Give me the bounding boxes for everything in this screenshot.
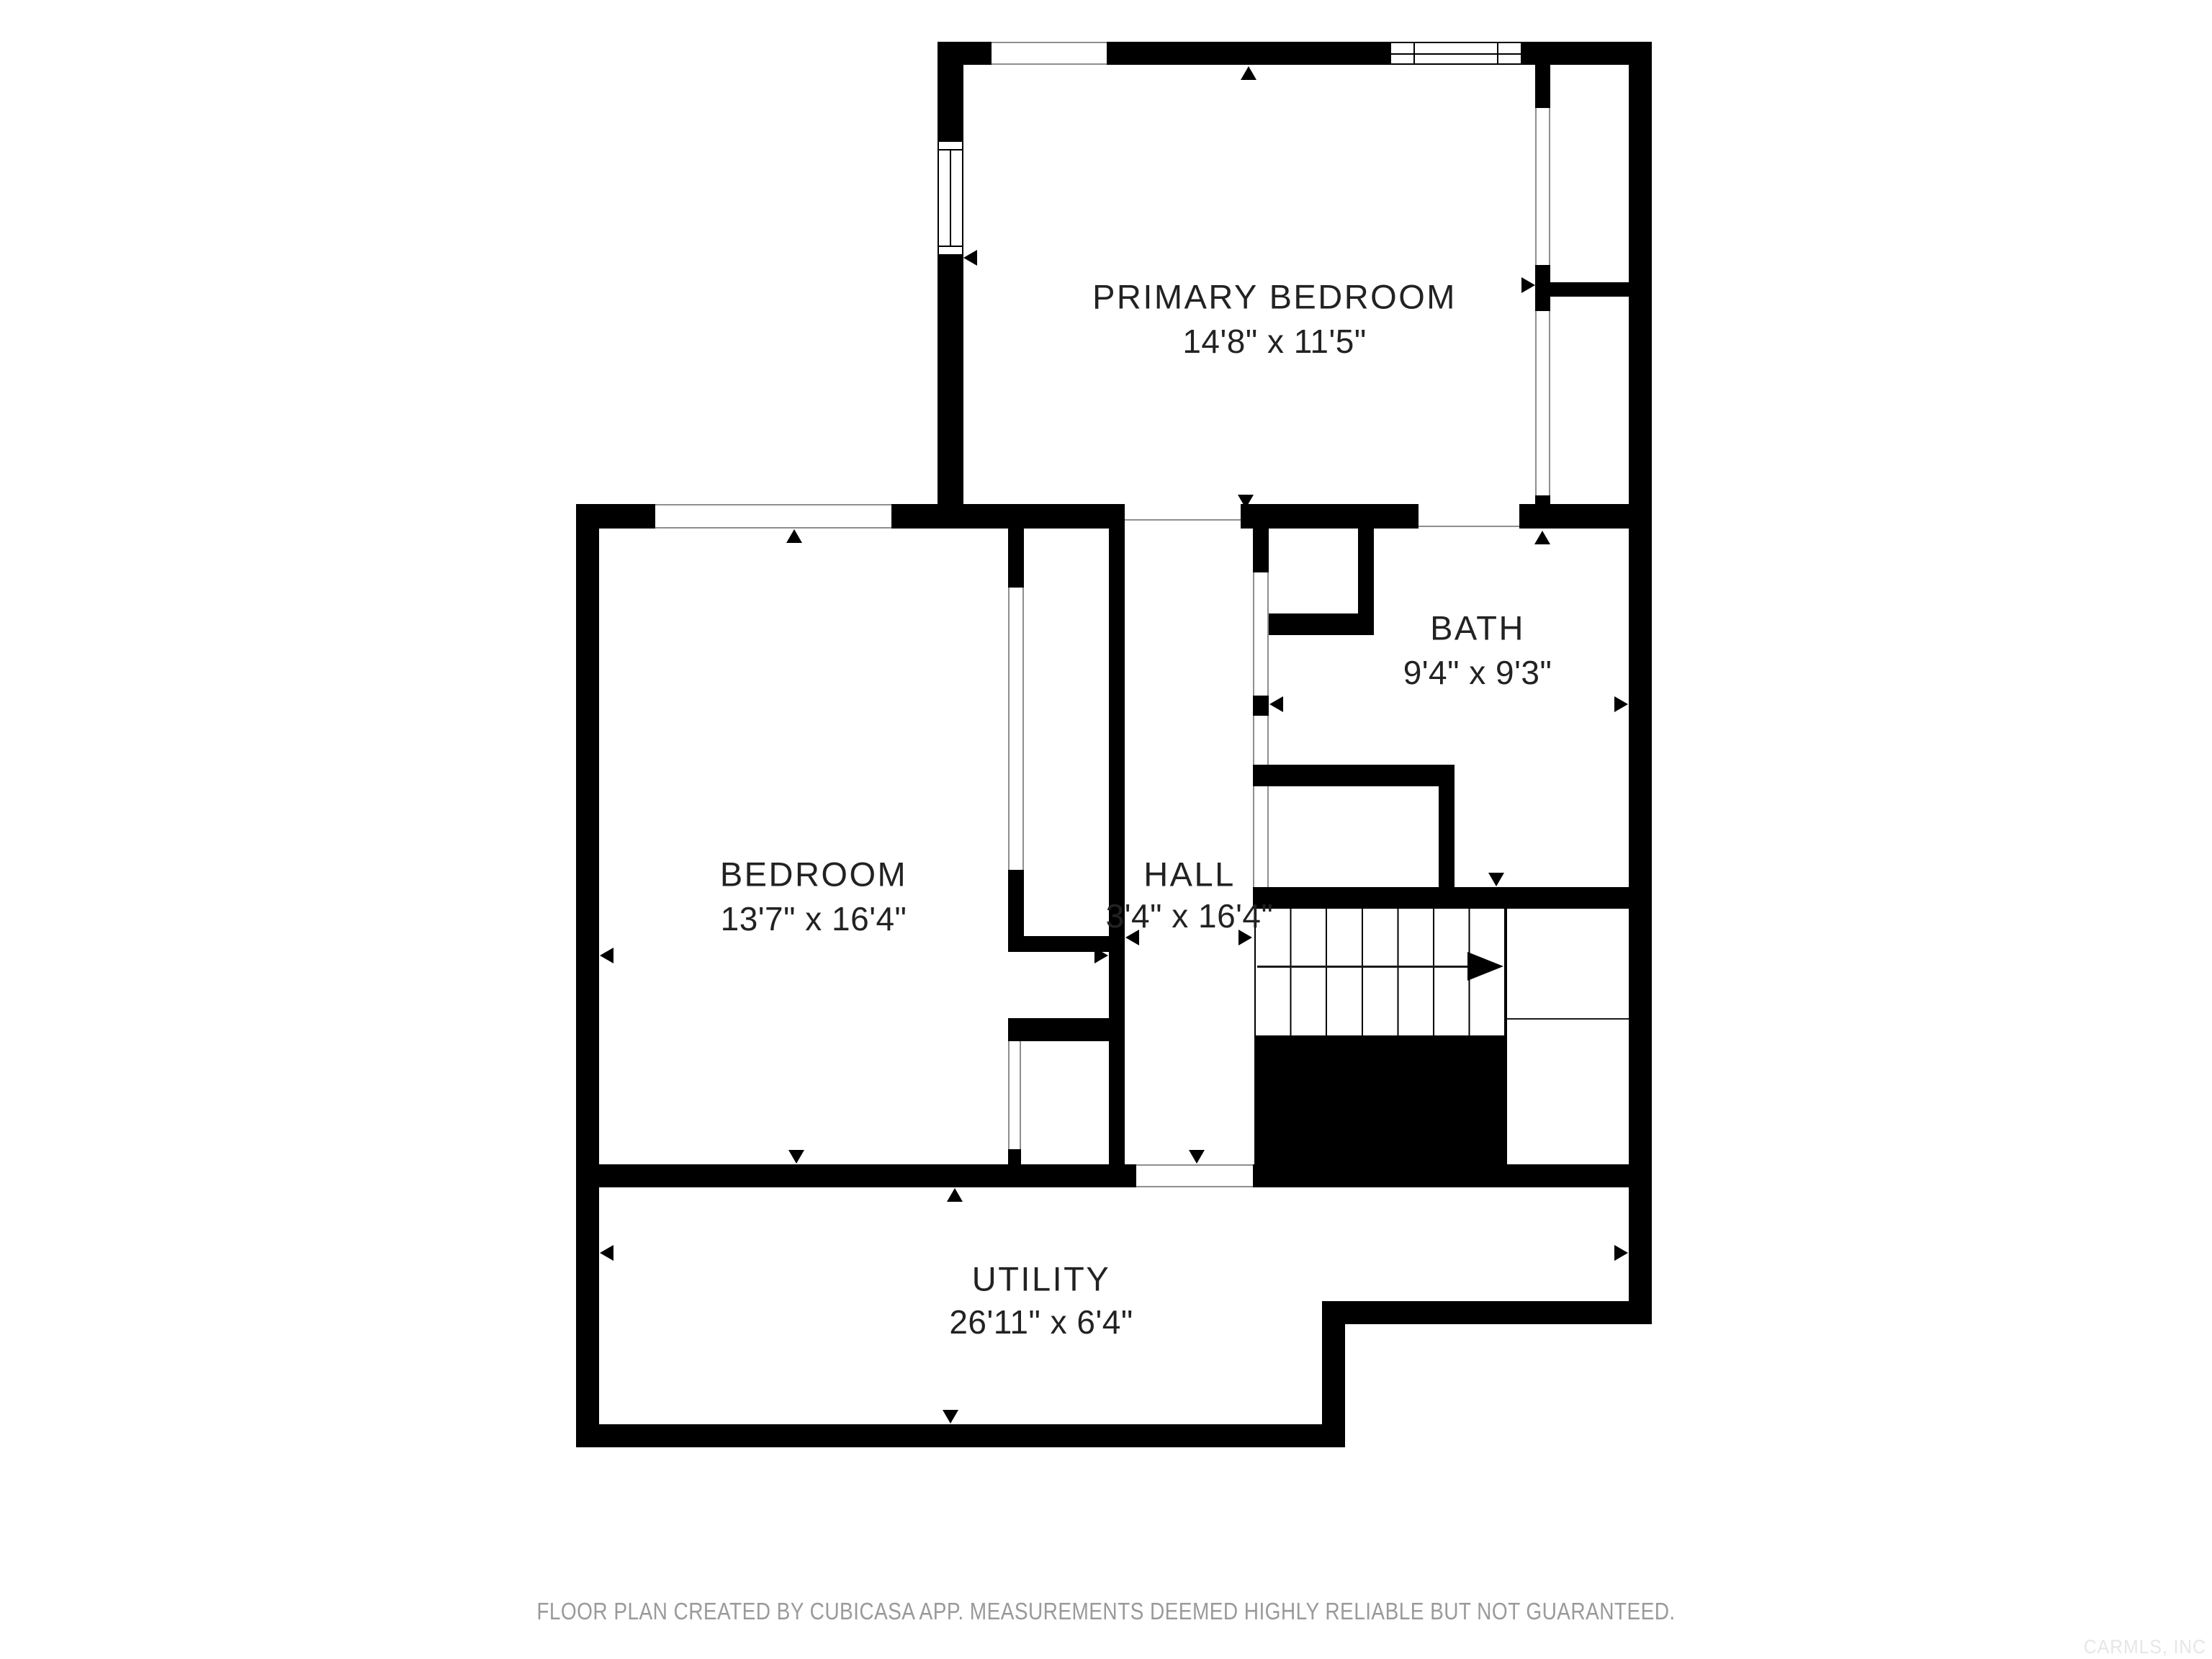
hall-dimensions: 3'4" x 16'4" <box>1106 896 1274 935</box>
primary-bedroom-top-arrow-icon <box>1241 66 1256 80</box>
stair-direction-arrow-icon <box>1467 952 1503 981</box>
stair-direction-line <box>1257 966 1470 968</box>
primary-bedroom-left-wall <box>938 42 963 529</box>
bedroom-top-arrow-icon <box>786 529 802 543</box>
bath-dimensions: 9'4" x 9'3" <box>1403 653 1552 692</box>
bedroom-bottom-arrow-icon <box>788 1150 804 1164</box>
stair-void <box>1254 1035 1507 1187</box>
bedroom-top-window-opening <box>655 504 891 529</box>
bath-top-arrow-icon <box>1534 531 1550 544</box>
primary-closet2-door-opening <box>1535 311 1550 495</box>
closet2-left-stub-bottom <box>1008 1149 1021 1164</box>
utility-bottom-arrow-icon <box>943 1410 958 1424</box>
primary-bedroom-dimensions: 14'8" x 11'5" <box>1182 322 1366 361</box>
floor-plan: PRIMARY BEDROOM 14'8" x 11'5" BEDROOM 13… <box>0 0 2212 1659</box>
hall-label: HALL <box>1143 855 1236 894</box>
hall-left-wall <box>1109 529 1125 1187</box>
hall-right-thin1 <box>1253 572 1269 696</box>
top-window <box>1390 42 1522 65</box>
bedroom-label: BEDROOM <box>720 855 907 894</box>
watermark-text: CARMLS, INC <box>2084 1636 2206 1658</box>
closet1-door-opening <box>1008 588 1024 870</box>
bath-label: BATH <box>1430 608 1525 648</box>
hall-utility-door-opening <box>1136 1164 1253 1187</box>
utility-bottom-wall <box>576 1424 1345 1447</box>
landing-divider-line <box>1507 1018 1629 1020</box>
bath-right-arrow-icon <box>1614 696 1628 712</box>
bath-bottom-wall <box>1253 887 1629 909</box>
utility-top-arrow-icon <box>947 1188 963 1202</box>
hall-right-thin2 <box>1253 716 1269 765</box>
shower-bottom-wall <box>1269 613 1374 635</box>
closet1-left-stub-top <box>1008 529 1024 588</box>
primary-closet1-door-opening <box>1535 108 1550 265</box>
hall-right-thin3 <box>1253 786 1269 887</box>
bath-bottom-arrow-icon <box>1488 873 1504 886</box>
left-wall <box>576 504 599 1447</box>
left-window <box>938 140 963 256</box>
bedroom-right-arrow-icon <box>1094 948 1108 963</box>
wc-top-wall <box>1253 765 1455 786</box>
utility-label: UTILITY <box>972 1259 1110 1299</box>
primary-bedroom-door-arrow-icon <box>1238 495 1254 508</box>
utility-right-arrow-icon <box>1614 1245 1628 1261</box>
primary-bedroom-right-arrow-icon <box>1521 277 1535 293</box>
primary-bedroom-left-arrow-icon <box>963 250 977 266</box>
right-wall <box>1629 42 1652 1324</box>
utility-dimensions: 26'11" x 6'4" <box>949 1303 1133 1341</box>
primary-closet-wall-block-bottom <box>1535 495 1550 529</box>
bedroom-dimensions: 13'7" x 16'4" <box>721 899 907 938</box>
top-wall-opening <box>992 42 1107 65</box>
hall-right-wall-block2 <box>1253 696 1269 716</box>
primary-closet-wall-stub-top <box>1535 65 1550 108</box>
step-wall-horizontal <box>1322 1301 1652 1324</box>
closet2-door-opening <box>1008 1041 1021 1149</box>
hall-door-arrow-icon <box>1189 1150 1205 1164</box>
primary-closet-wall-block-mid <box>1535 265 1550 311</box>
primary-bedroom-label: PRIMARY BEDROOM <box>1092 277 1457 317</box>
footer-disclaimer: FLOOR PLAN CREATED BY CUBICASA APP. MEAS… <box>536 1598 1675 1625</box>
primary-bath-door-opening <box>1419 504 1519 529</box>
primary-closet-divider-wall <box>1550 282 1629 297</box>
utility-left-arrow-icon <box>600 1245 613 1261</box>
closet2-top-wall <box>1008 1018 1125 1041</box>
hall-right-wall-block1 <box>1253 529 1269 572</box>
hall-top-door-opening <box>1125 504 1241 529</box>
bath-left-arrow-icon <box>1269 696 1283 712</box>
bedroom-left-arrow-icon <box>600 948 613 963</box>
